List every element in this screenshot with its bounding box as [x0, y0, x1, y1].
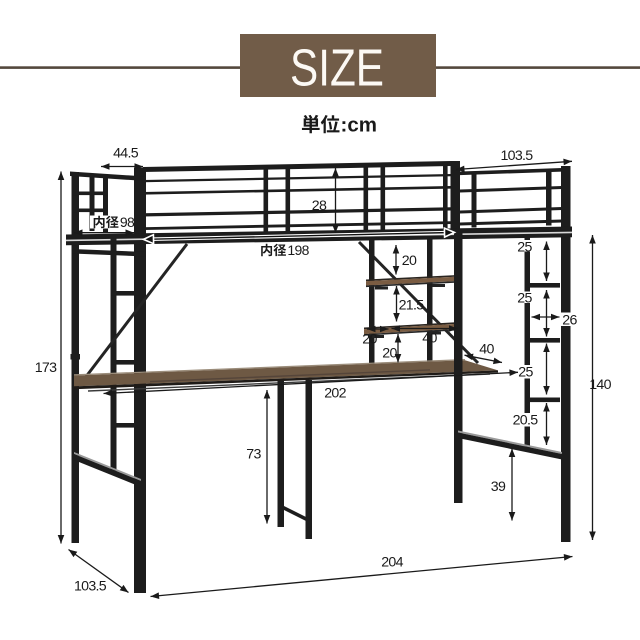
svg-text:40: 40: [479, 342, 494, 358]
svg-text:44.5: 44.5: [113, 146, 139, 162]
svg-text:98: 98: [120, 214, 135, 230]
svg-text:73: 73: [246, 447, 261, 463]
svg-text:26: 26: [562, 313, 577, 329]
svg-text:204: 204: [381, 555, 403, 571]
svg-text:103.5: 103.5: [500, 148, 533, 164]
svg-text:SIZE: SIZE: [290, 39, 384, 97]
svg-text:140: 140: [589, 377, 611, 393]
svg-text::cm: :cm: [341, 114, 377, 137]
svg-text:20: 20: [382, 346, 397, 362]
svg-text:198: 198: [287, 242, 309, 258]
svg-text:25: 25: [518, 365, 533, 381]
svg-text:25: 25: [517, 240, 532, 256]
svg-text:20: 20: [362, 332, 377, 348]
svg-text:25: 25: [517, 291, 532, 307]
svg-text:20.5: 20.5: [513, 413, 539, 429]
svg-text:103.5: 103.5: [74, 579, 107, 595]
svg-text:202: 202: [324, 386, 346, 402]
svg-text:28: 28: [312, 198, 327, 214]
svg-text:40: 40: [422, 331, 437, 347]
svg-text:173: 173: [35, 360, 57, 376]
svg-text:39: 39: [491, 479, 506, 495]
svg-text:20: 20: [402, 253, 417, 269]
svg-text:21.5: 21.5: [399, 298, 425, 314]
